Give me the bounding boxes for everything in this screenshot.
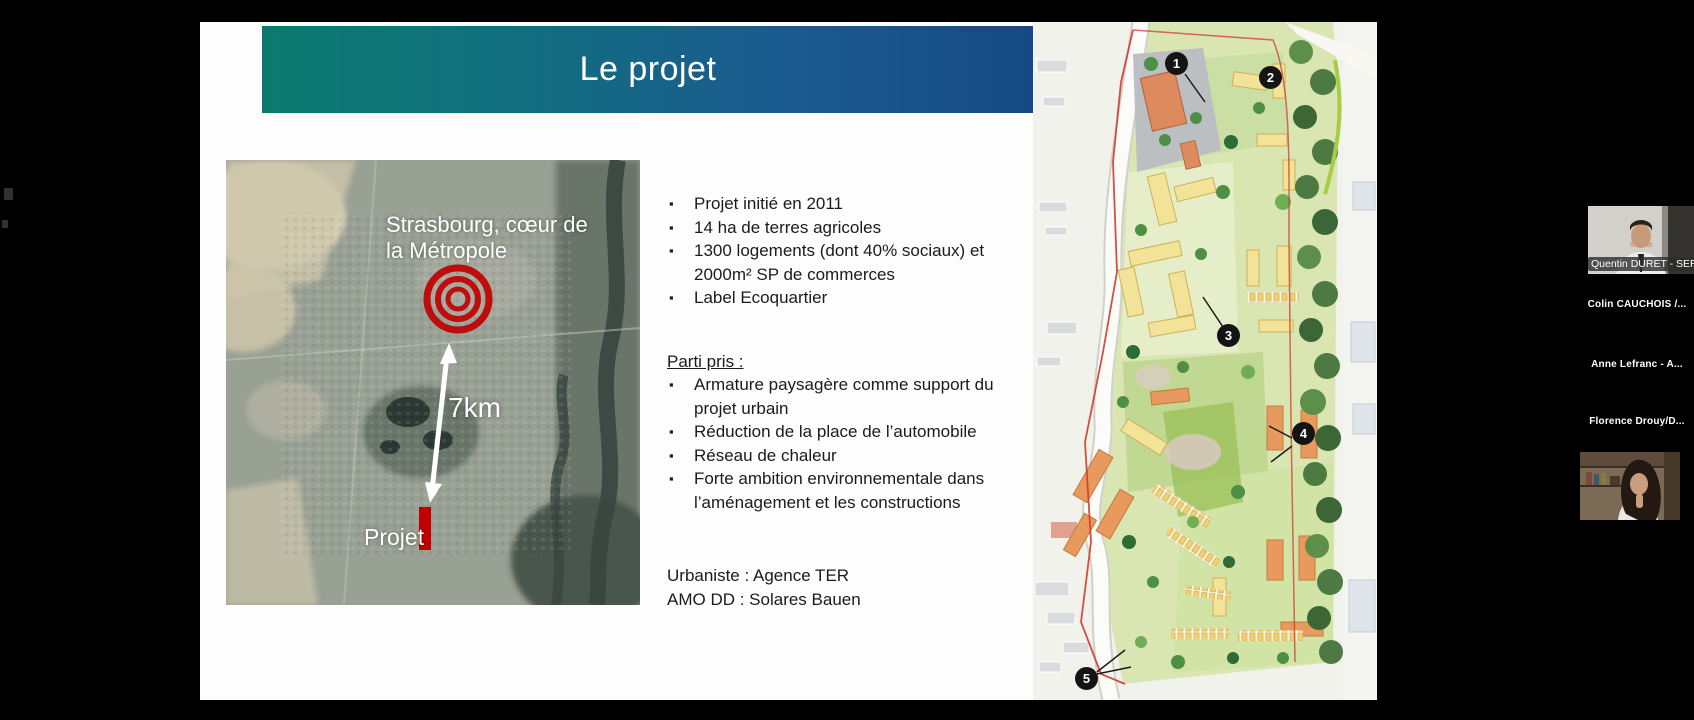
plan-marker-3: 3 [1217, 324, 1240, 347]
credit-urbaniste: Urbaniste : Agence TER [667, 564, 1019, 588]
strasbourg-satellite-map: Strasbourg, cœur de la Métropole 7km Pro… [226, 160, 640, 605]
participant-name-label: Anne Lefranc - A... [1591, 359, 1683, 370]
bullet-item: Forte ambition environnementale dans l’a… [667, 467, 1019, 514]
bullet-item: Réduction de la place de l’automobile [667, 420, 1019, 444]
plan-marker-5: 5 [1075, 667, 1098, 690]
slide-title-banner: Le projet [262, 26, 1034, 113]
bullet-item: Armature paysagère comme support du proj… [667, 373, 1019, 420]
bullet-list-main: Projet initié en 2011 14 ha de terres ag… [667, 192, 1019, 310]
credit-amo-dd: AMO DD : Solares Bauen [667, 588, 1019, 612]
parti-pris-heading: Parti pris : [667, 350, 1019, 374]
meeting-screen-share: Le projet [0, 0, 1694, 720]
bullet-item: Réseau de chaleur [667, 444, 1019, 468]
participant-name-label: Florence Drouy/D... [1589, 416, 1685, 427]
bullet-list-parti-pris: Armature paysagère comme support du proj… [667, 373, 1019, 514]
screen-edge-artifact [2, 220, 8, 228]
plan-marker-4: 4 [1292, 422, 1315, 445]
participant-tile-camera-off[interactable]: Colin CAUCHOIS /... [1580, 274, 1694, 334]
bullet-item: 1300 logements (dont 40% sociaux) et 200… [667, 239, 1019, 286]
participant-name-label: Quentin DURET - SERS [1588, 257, 1694, 271]
credits-block: Urbaniste : Agence TER AMO DD : Solares … [667, 564, 1019, 611]
participants-panel: Quentin DURET - SERS Colin CAUCHOIS /...… [1580, 206, 1694, 520]
plan-marker-2: 2 [1259, 66, 1282, 89]
plan-marker-1: 1 [1165, 52, 1188, 75]
participant-video-tile[interactable]: Quentin DURET - SERS [1580, 206, 1694, 274]
slide-title: Le projet [580, 50, 717, 89]
bullet-item: 14 ha de terres agricoles [667, 216, 1019, 240]
masterplan-image: 1 2 3 4 5 [1033, 22, 1377, 700]
bullet-item: Projet initié en 2011 [667, 192, 1019, 216]
webcam-feed [1580, 452, 1680, 520]
participant-name-label: Colin CAUCHOIS /... [1588, 299, 1687, 310]
screen-edge-artifact [4, 188, 13, 200]
participant-tile-camera-off[interactable]: Anne Lefranc - A... [1580, 334, 1694, 394]
map-project-label: Projet [364, 524, 424, 551]
map-city-label: Strasbourg, cœur de la Métropole [386, 212, 596, 264]
masterplan-drawing [1033, 22, 1377, 700]
map-distance-label: 7km [448, 392, 501, 424]
slide-text-column: Projet initié en 2011 14 ha de terres ag… [667, 192, 1019, 611]
presentation-slide: Le projet [200, 22, 1377, 700]
participant-tile-camera-off[interactable]: Florence Drouy/D... [1580, 394, 1694, 448]
participant-video-tile[interactable] [1580, 452, 1694, 520]
bullet-item: Label Ecoquartier [667, 286, 1019, 310]
